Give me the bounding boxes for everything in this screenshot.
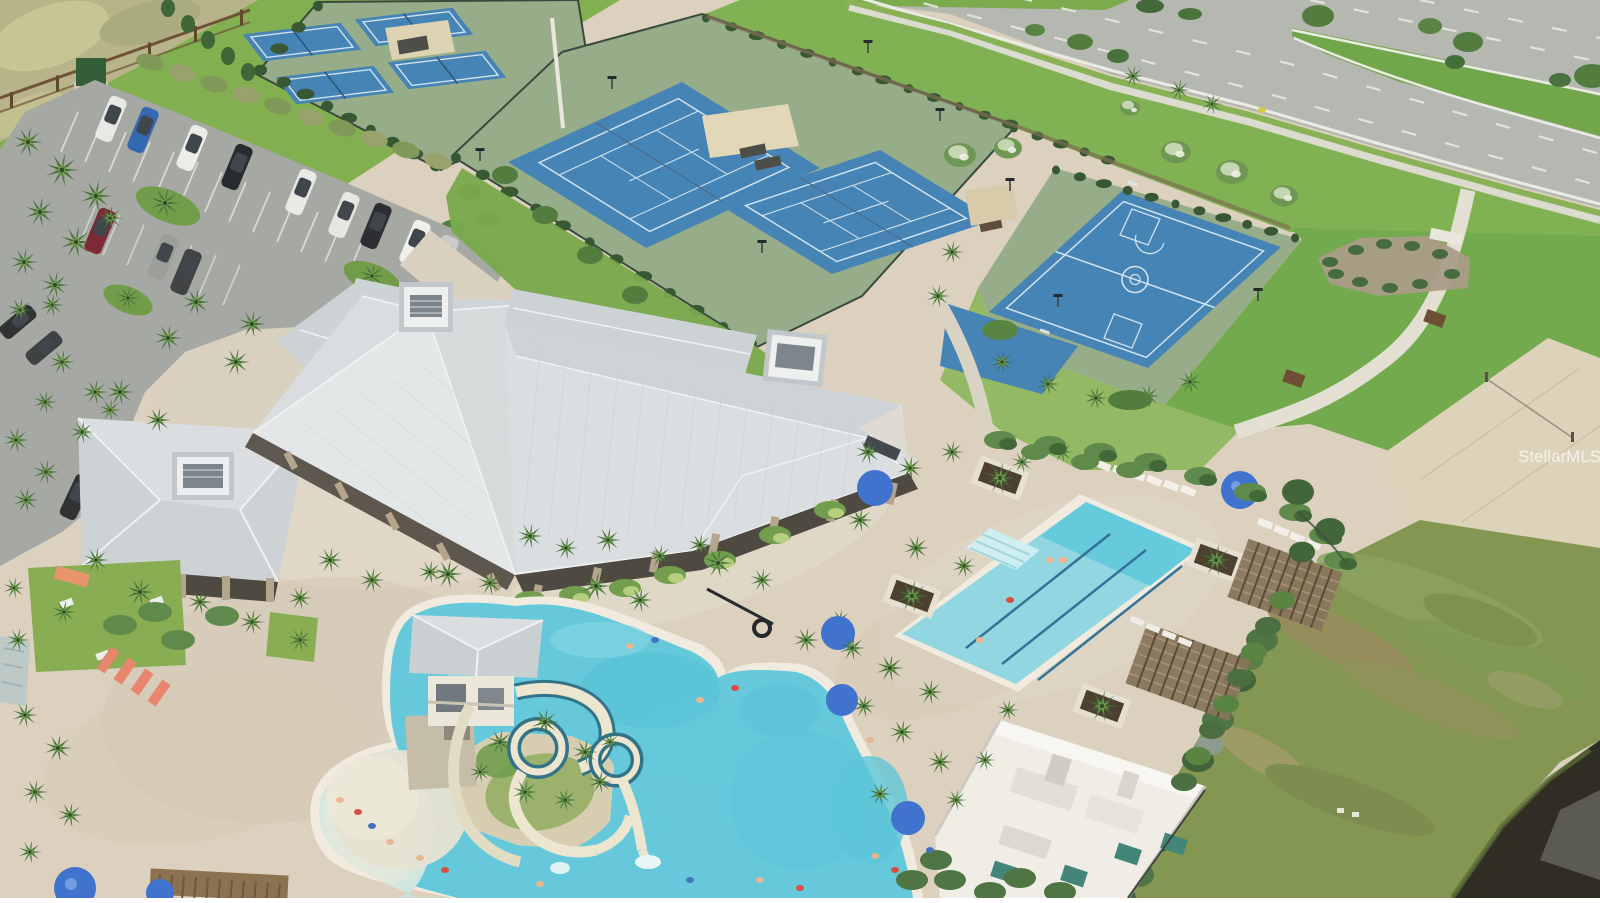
- svg-text:StellarMLS: StellarMLS: [1518, 447, 1600, 466]
